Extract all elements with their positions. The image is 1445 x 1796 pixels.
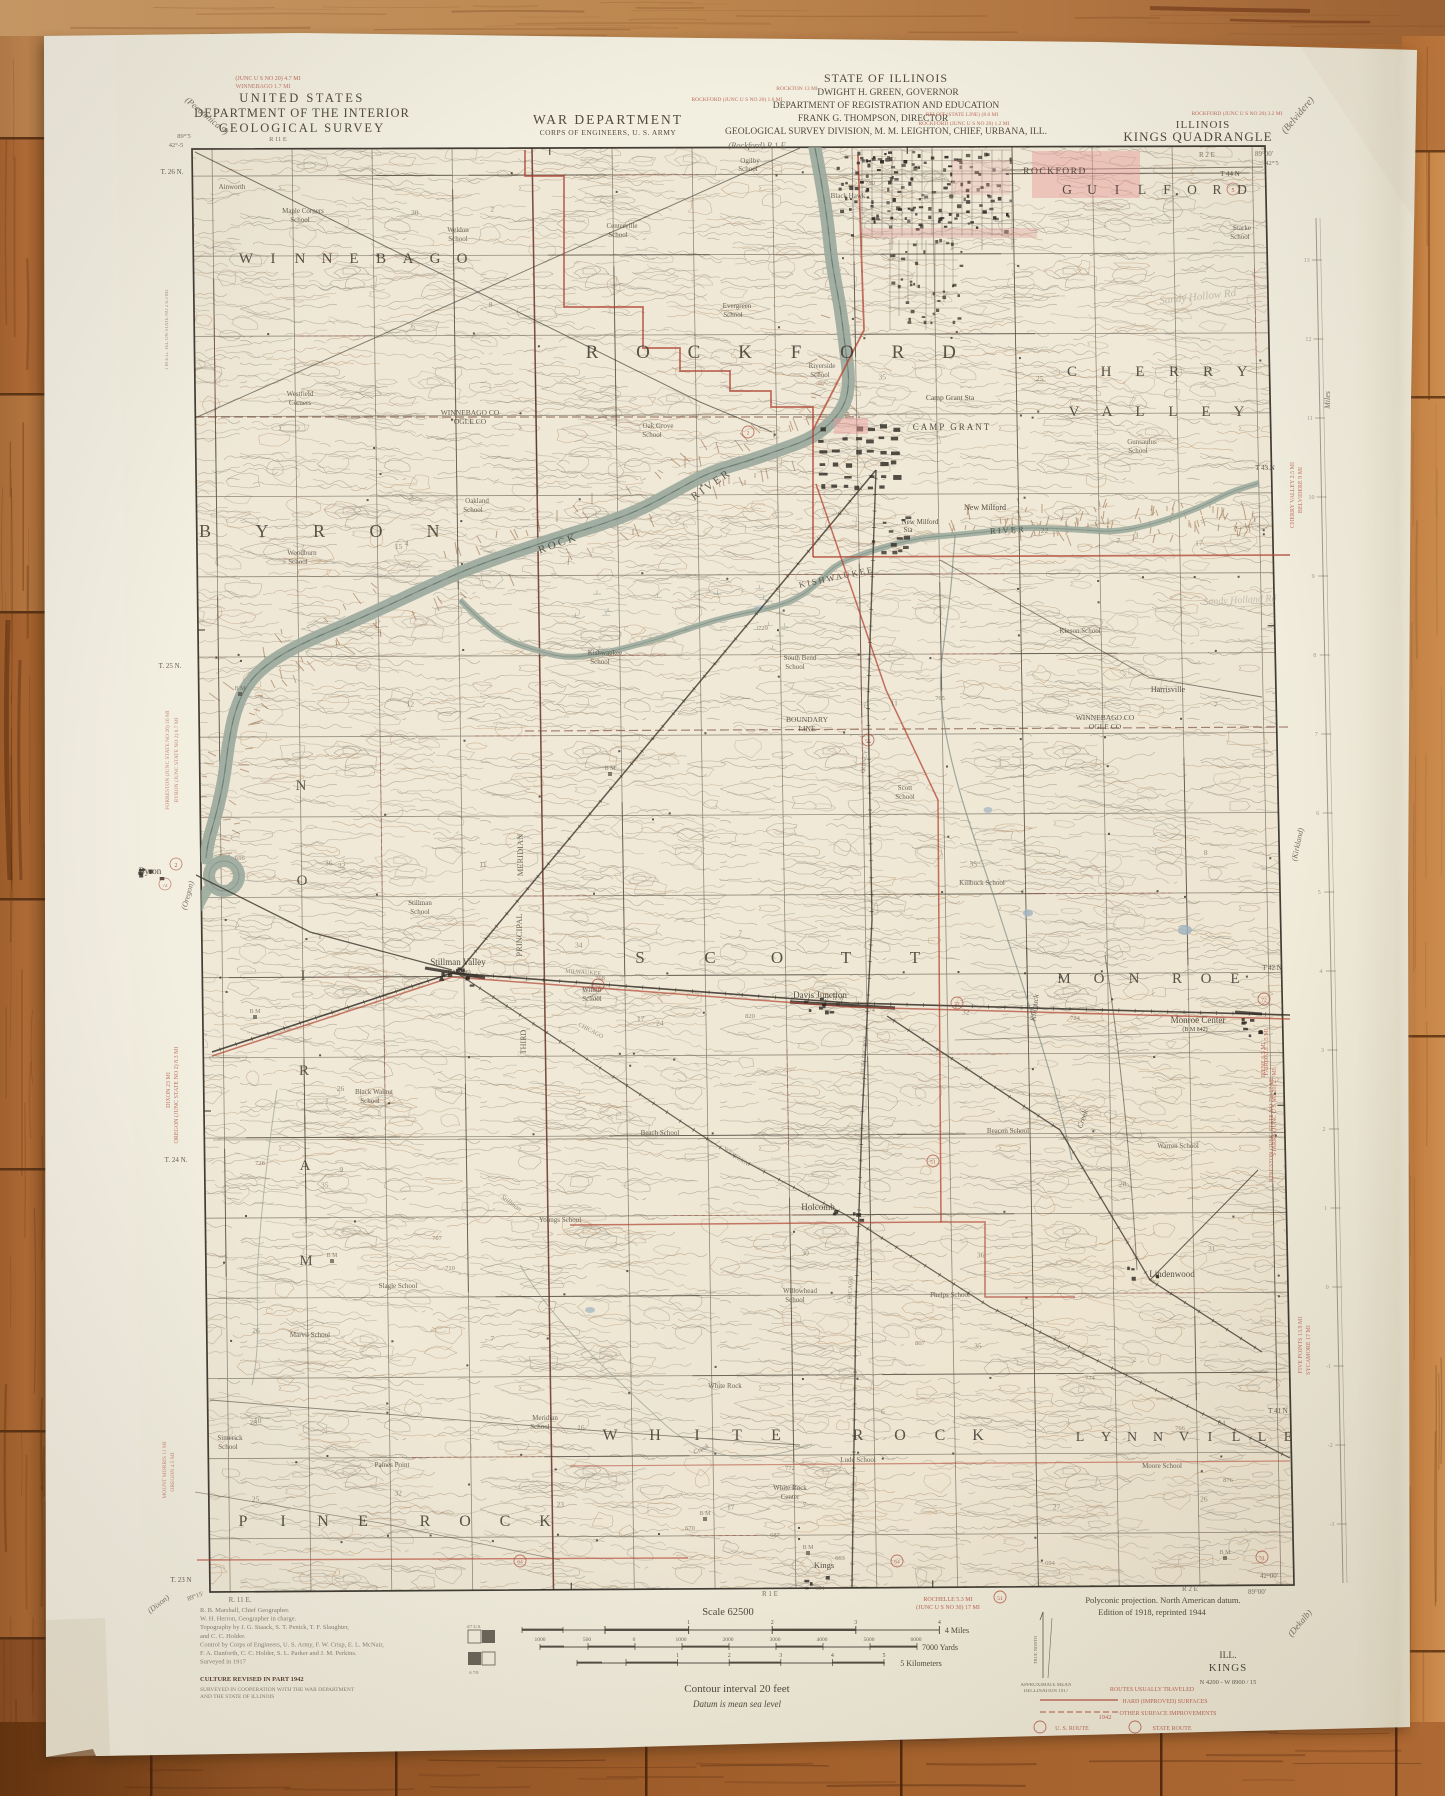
svg-text:Woodburn: Woodburn [287,549,317,557]
svg-text:9: 9 [340,1165,344,1174]
svg-text:F. A. Danforth, C. C. Holder,: F. A. Danforth, C. C. Holder, S. L. Park… [200,1650,357,1657]
svg-text:4 Miles: 4 Miles [945,1626,969,1635]
svg-text:17: 17 [1195,539,1203,548]
svg-text:807: 807 [915,1340,926,1347]
svg-text:707: 707 [432,1235,443,1242]
svg-text:Riverside: Riverside [809,362,836,370]
svg-text:35: 35 [974,1341,982,1350]
svg-text:B M: B M [605,766,617,772]
svg-text:SYCAMORE 17 MI: SYCAMORE 17 MI [1306,1325,1312,1375]
svg-text:7: 7 [490,1334,494,1343]
svg-text:School: School [288,558,308,566]
svg-text:School: School [360,1097,380,1105]
svg-text:ILL.: ILL. [1219,1651,1236,1661]
svg-text:-3: -3 [1329,1522,1334,1528]
svg-text:Beach School: Beach School [641,1129,680,1137]
svg-text:51: 51 [1259,1556,1265,1562]
svg-text:APPROXIMATE MEAN: APPROXIMATE MEAN [1021,1683,1072,1688]
svg-text:R: R [853,1427,864,1444]
svg-text:School: School [738,165,758,173]
svg-text:C: C [935,1427,946,1444]
svg-text:12: 12 [1305,337,1311,343]
svg-text:WAR DEPARTMENT: WAR DEPARTMENT [533,112,683,127]
svg-text:FAIRDALE 3.5 MI: FAIRDALE 3.5 MI [1264,1028,1270,1075]
svg-text:651: 651 [815,1585,825,1592]
svg-text:42°00': 42°00' [1260,1572,1278,1580]
svg-text:OGLE CO: OGLE CO [454,417,487,426]
svg-text:Kishwaukee: Kishwaukee [588,649,623,657]
svg-text:2: 2 [771,1620,774,1626]
svg-text:ROUTES USUALLY TRAVELED: ROUTES USUALLY TRAVELED [1110,1687,1195,1693]
svg-text:51: 51 [930,1160,936,1166]
svg-text:O: O [457,251,468,267]
svg-text:M: M [299,1253,312,1269]
svg-text:5000: 5000 [864,1637,875,1643]
svg-text:I: I [280,1513,285,1530]
svg-text:FORRESTON (JUNC STATE NO 26) 1: FORRESTON (JUNC STATE NO 26) 16 MI [164,710,171,810]
svg-text:School: School [530,1423,550,1431]
svg-text:35: 35 [969,860,977,869]
svg-text:N: N [295,251,306,267]
svg-text:4: 4 [938,1620,941,1626]
svg-text:26: 26 [252,1326,260,1335]
svg-text:Youngs School: Youngs School [539,1216,581,1224]
svg-text:R. 11 E.: R. 11 E. [229,1596,252,1604]
svg-text:CULTURE REVISED IN PART 1942: CULTURE REVISED IN PART 1942 [200,1676,304,1683]
svg-text:R: R [1212,182,1221,197]
svg-text:C: C [500,1513,511,1530]
svg-text:C: C [688,342,701,363]
svg-text:694: 694 [1045,1560,1056,1567]
svg-text:School: School [723,311,743,319]
svg-text:R: R [313,521,325,541]
svg-text:GEOLOGICAL SURVEY: GEOLOGICAL SURVEY [219,121,385,135]
svg-text:Control by Corps of Engineers,: Control by Corps of Engineers, U. S. Arm… [200,1641,384,1648]
svg-text:N: N [1153,1430,1163,1445]
svg-text:DECLINATION 1917: DECLINATION 1917 [1024,1689,1069,1694]
svg-text:72: 72 [163,884,169,889]
svg-text:51: 51 [997,1596,1003,1602]
svg-text:35: 35 [879,373,887,382]
svg-text:K: K [972,1427,984,1444]
svg-text:N: N [322,251,333,267]
svg-text:2: 2 [175,863,178,869]
svg-text:Lindenwood: Lindenwood [1149,1269,1195,1279]
svg-text:30: 30 [411,208,419,217]
svg-text:Contour interval 20 feet: Contour interval 20 feet [684,1683,789,1695]
svg-text:Corners: Corners [289,399,311,407]
svg-text:Simerick: Simerick [217,1434,243,1442]
svg-text:V: V [1069,404,1080,420]
svg-text:ROCHELLE 5.3 MI: ROCHELLE 5.3 MI [923,1597,972,1603]
svg-text:Byron: Byron [139,866,162,876]
svg-text:36: 36 [977,1251,985,1260]
svg-text:M: M [1057,971,1070,987]
svg-text:Gunsaulus: Gunsaulus [1127,438,1157,446]
svg-text:School: School [218,1443,238,1451]
svg-text:Willowhead: Willowhead [783,1287,817,1295]
svg-text:A: A [1102,404,1113,420]
svg-text:FIVE POINTS 13.9 MI: FIVE POINTS 13.9 MI [1298,1317,1304,1374]
svg-text:32: 32 [962,1008,970,1017]
svg-text:K: K [738,342,752,363]
svg-text:N: N [317,1513,329,1530]
svg-text:6: 6 [1316,811,1319,817]
svg-text:ROCKFORD: ROCKFORD [1023,167,1087,177]
svg-text:2: 2 [728,1653,731,1659]
svg-text:Oakland: Oakland [465,497,489,505]
svg-text:-1: -1 [1326,1364,1331,1370]
svg-text:New Milford: New Milford [964,503,1006,512]
svg-text:ROCKFORD (JUNC U S NO 20) 1.2: ROCKFORD (JUNC U S NO 20) 1.2 MI [918,120,1009,127]
svg-text:ROCKTON 13 MI: ROCKTON 13 MI [776,86,818,92]
svg-text:F: F [791,342,802,363]
svg-text:E: E [1201,404,1210,420]
svg-text:O: O [840,342,854,363]
svg-text:72: 72 [954,1002,960,1008]
svg-text:R 2 E: R 2 E [1199,151,1215,159]
svg-text:B M: B M [1220,1550,1232,1556]
svg-text:30: 30 [801,1249,809,1258]
svg-text:4/7 U.S.: 4/7 U.S. [467,1624,482,1629]
svg-text:V: V [1179,1430,1189,1445]
svg-text:Evergreen: Evergreen [723,302,752,310]
svg-text:64: 64 [894,1560,900,1566]
svg-text:R: R [1172,971,1182,987]
svg-text:728: 728 [255,1160,265,1167]
svg-text:Polyconic projection. North: Polyconic projection. North American dat… [1085,1595,1240,1605]
svg-text:51: 51 [865,739,871,745]
svg-text:I: I [1115,182,1120,197]
svg-text:Meridian: Meridian [532,1414,558,1422]
svg-text:26: 26 [337,1084,345,1093]
svg-text:South Bend: South Bend [784,654,817,662]
svg-text:Y: Y [1234,404,1245,420]
svg-text:L: L [1138,182,1146,197]
svg-text:Lude School: Lude School [840,1456,876,1464]
svg-text:H: H [1101,364,1112,380]
svg-text:12: 12 [406,700,414,709]
svg-text:1942: 1942 [1099,1714,1112,1721]
svg-text:Holcomb: Holcomb [801,1202,835,1212]
svg-text:784: 784 [1070,1015,1081,1022]
svg-text:B M: B M [327,1253,339,1259]
svg-text:3: 3 [779,1653,782,1659]
svg-text:35: 35 [321,1181,329,1190]
svg-text:774: 774 [865,1007,876,1014]
svg-text:C: C [1067,364,1077,380]
svg-text:687: 687 [770,1532,781,1539]
svg-text:Y: Y [1101,1430,1111,1445]
svg-text:Centerville: Centerville [606,222,637,230]
svg-text:School: School [642,431,662,439]
svg-text:G: G [430,251,441,267]
svg-text:T 43 N: T 43 N [1255,464,1275,472]
svg-text:STATE OF ILLINOIS: STATE OF ILLINOIS [824,71,948,85]
svg-text:T. 24 N.: T. 24 N. [165,1156,188,1164]
svg-text:School: School [1230,233,1250,241]
svg-text:Starke: Starke [1233,224,1251,232]
svg-text:R 11 E: R 11 E [269,136,287,143]
svg-text:E: E [771,1427,781,1444]
svg-text:B M: B M [833,996,845,1002]
svg-text:School: School [410,908,430,916]
svg-text:U: U [1087,182,1097,197]
svg-text:OREGON (JUNC STATE NO 2) 8.3 M: OREGON (JUNC STATE NO 2) 8.3 MI [173,1046,180,1143]
svg-text:Sta: Sta [904,526,914,534]
svg-text:MOUNT MORRIS 11 MI: MOUNT MORRIS 11 MI [162,1441,168,1498]
svg-text:CHERRY VALLEY 2.5 MI: CHERRY VALLEY 2.5 MI [1290,462,1296,528]
svg-text:O: O [1187,182,1197,197]
svg-text:B: B [199,521,211,541]
svg-text:730: 730 [590,995,600,1002]
svg-text:I: I [1208,1430,1213,1445]
svg-text:Stillman Valley: Stillman Valley [430,957,486,967]
svg-text:L: L [1076,1430,1085,1445]
svg-text:5: 5 [1318,890,1321,896]
svg-text:A: A [300,1158,311,1174]
svg-text:Y: Y [256,521,269,541]
svg-text:DEPARTMENT OF THE INTERIOR: DEPARTMENT OF THE INTERIOR [194,106,410,120]
svg-text:White Rock: White Rock [708,1382,742,1390]
svg-text:1: 1 [687,1620,690,1626]
svg-text:28: 28 [1119,1180,1127,1189]
svg-text:8: 8 [489,300,493,309]
svg-text:1000: 1000 [535,1637,546,1643]
svg-text:T 42 N: T 42 N [1262,964,1282,972]
svg-text:3: 3 [854,1620,857,1626]
svg-text:25: 25 [1036,374,1044,383]
svg-text:Weldon: Weldon [447,226,469,234]
svg-text:I: I [301,968,306,984]
svg-text:School: School [785,1296,805,1304]
svg-text:O: O [636,342,650,363]
svg-text:T 44 N: T 44 N [1220,170,1240,178]
svg-text:72: 72 [595,984,601,990]
svg-text:KINGS QUADRANGLE: KINGS QUADRANGLE [1123,129,1272,144]
svg-text:DIXON 23 MI: DIXON 23 MI [166,1072,172,1108]
svg-text:T: T [910,948,921,967]
svg-text:663: 663 [835,1555,845,1562]
svg-text:4: 4 [831,1653,834,1659]
svg-text:780: 780 [865,180,875,187]
svg-text:D: D [1237,182,1247,197]
svg-text:New Milford: New Milford [902,518,939,526]
svg-text:11: 11 [1307,416,1313,422]
svg-text:School: School [810,371,830,379]
svg-text:K: K [539,1513,551,1530]
svg-text:Black Hawk: Black Hawk [831,192,866,200]
svg-text:T. 26 N.: T. 26 N. [161,168,184,176]
svg-text:ROCKFORD (JUNC U S NO 20) 1.6: ROCKFORD (JUNC U S NO 20) 1.6 MI [691,96,782,103]
svg-text:White Rock: White Rock [773,1484,807,1492]
svg-text:D: D [942,342,956,363]
svg-text:L: L [1232,1430,1241,1445]
svg-text:R: R [1169,364,1179,380]
svg-text:BOUNDARY: BOUNDARY [786,715,829,724]
svg-text:Stillman: Stillman [408,899,432,907]
svg-text:Beacon School: Beacon School [987,1127,1029,1135]
svg-text:670: 670 [685,1525,695,1532]
svg-text:23: 23 [556,1500,564,1509]
svg-text:OTHER SURFACE IMPROVEMENTS: OTHER SURFACE IMPROVEMENTS [1120,1711,1217,1717]
svg-text:SURVEYED IN COOPERATION WITH T: SURVEYED IN COOPERATION WITH THE WAR DEP… [200,1687,355,1693]
svg-text:O: O [1094,971,1105,987]
svg-text:MERIDIAN: MERIDIAN [515,834,525,877]
svg-text:UNITED STATES: UNITED STATES [239,91,365,105]
svg-text:Camp Grant Sta: Camp Grant Sta [926,393,975,402]
svg-text:Maple Corners: Maple Corners [282,207,324,215]
svg-text:STARKS (JUNC U S NO 20) 27 MI: STARKS (JUNC U S NO 20) 27 MI [1271,1068,1278,1156]
svg-text:CAMP GRANT: CAMP GRANT [913,422,991,432]
svg-text:8: 8 [1204,848,1208,857]
svg-text:E: E [1284,1430,1293,1445]
svg-text:5 Kilometers: 5 Kilometers [900,1659,942,1668]
svg-text:F: F [1163,182,1171,197]
svg-text:Oak Grove: Oak Grove [643,422,674,430]
svg-text:HARD (IMPROVED) SURFACES: HARD (IMPROVED) SURFACES [1122,1698,1207,1705]
svg-text:Phelps School: Phelps School [930,1291,970,1299]
svg-text:R: R [299,1063,309,1079]
svg-text:(Rockford) R 1 E: (Rockford) R 1 E [728,140,786,150]
svg-text:Scale 62500: Scale 62500 [702,1607,754,1618]
svg-text:School: School [895,793,915,801]
svg-text:Datum is mean sea level: Datum is mean sea level [692,1699,781,1709]
svg-text:774: 774 [1085,1375,1096,1382]
svg-text:Kings: Kings [814,1560,834,1570]
svg-text:1 M E.G. TEL ON STATE NO 2 6.: 1 M E.G. TEL ON STATE NO 2 6.3 MI [165,290,170,370]
svg-text:A: A [403,251,414,267]
svg-text:School: School [463,506,483,514]
svg-text:Ogilby: Ogilby [740,157,760,165]
svg-text:P: P [239,1513,248,1530]
svg-text:N: N [1129,971,1140,987]
svg-text:5: 5 [883,1653,886,1659]
svg-text:DEPARTMENT OF REGISTRATION AND: DEPARTMENT OF REGISTRATION AND EDUCATION [773,101,1000,111]
svg-text:6 7/8: 6 7/8 [469,1670,479,1675]
svg-text:N: N [296,778,307,794]
svg-text:11: 11 [479,860,486,869]
svg-text:7: 7 [738,929,742,938]
svg-text:7: 7 [1315,732,1318,738]
svg-text:E: E [358,1513,368,1530]
svg-text:Topography by J. G. Staack, S.: Topography by J. G. Staack, S. T. Penick… [200,1624,349,1631]
svg-text:1000: 1000 [676,1637,687,1643]
svg-text:42°'5: 42°'5 [1265,160,1279,167]
svg-text:7000 Yards: 7000 Yards [922,1643,958,1652]
svg-text:School: School [608,231,628,239]
svg-text:22: 22 [1041,526,1049,535]
svg-text:3: 3 [1321,1048,1324,1054]
svg-text:42°-5: 42°-5 [169,142,184,149]
svg-text:766: 766 [1175,1425,1186,1432]
svg-text:0: 0 [1326,1285,1329,1291]
svg-text:89°00': 89°00' [1255,150,1273,158]
svg-text:and C. C. Holder.: and C. C. Holder. [200,1633,246,1640]
svg-text:T 41 N: T 41 N [1268,1407,1288,1415]
svg-text:(JUNC U S NO 20) 4.7 MI: (JUNC U S NO 20) 4.7 MI [235,75,300,82]
svg-text:7: 7 [803,1500,807,1509]
svg-text:-2: -2 [1328,1443,1333,1449]
svg-text:E: E [1230,971,1239,987]
svg-text:B M: B M [235,686,247,692]
svg-text:500: 500 [583,1637,592,1643]
svg-text:25: 25 [252,1495,260,1504]
svg-text:4000: 4000 [817,1637,828,1643]
svg-text:696: 696 [235,855,246,862]
svg-text:B M: B M [803,1545,815,1551]
svg-text:27: 27 [1053,1502,1061,1511]
svg-text:10: 10 [1309,495,1315,501]
svg-text:7: 7 [1116,536,1120,545]
svg-text:BELVIDERE 9 MI: BELVIDERE 9 MI [1298,467,1304,513]
svg-text:KINGS: KINGS [1209,1662,1248,1674]
svg-text:STATE ROUTE: STATE ROUTE [1152,1726,1191,1732]
svg-text:School: School [590,658,610,666]
svg-text:R: R [420,1513,431,1530]
svg-text:School: School [1128,447,1148,455]
svg-text:W. H. Herron, Geographer in ch: W. H. Herron, Geographer in charge. [200,1616,297,1623]
svg-text:Scott: Scott [898,784,912,792]
svg-text:34: 34 [575,940,583,949]
svg-text:Black Walnut: Black Walnut [355,1088,393,1096]
svg-text:Kinson School: Kinson School [1059,627,1100,635]
svg-text:W: W [602,1427,618,1444]
svg-text:0: 0 [633,1637,636,1643]
svg-text:AND THE STATE OF ILLINOIS: AND THE STATE OF ILLINOIS [200,1694,274,1700]
svg-text:S: S [635,948,644,967]
svg-text:WINNEBAGO CO: WINNEBAGO CO [441,408,500,417]
svg-text:24: 24 [656,1019,664,1028]
svg-text:7: 7 [1214,700,1218,709]
svg-text:Surveyed in 1917: Surveyed in 1917 [200,1659,247,1666]
svg-text:E: E [349,251,358,267]
svg-text:H: H [649,1427,661,1444]
svg-text:1: 1 [318,932,322,941]
svg-text:Paines Point: Paines Point [375,1461,410,1469]
svg-text:T. 23 N: T. 23 N [170,1576,191,1584]
svg-text:C: C [704,948,715,967]
svg-text:Killbuck School: Killbuck School [959,879,1005,887]
svg-text:School: School [448,235,468,243]
svg-text:B M: B M [250,1009,262,1015]
svg-text:O: O [459,1513,471,1530]
svg-text:T: T [732,1427,742,1444]
svg-text:(JUNC U S NO 30) 17 MI: (JUNC U S NO 30) 17 MI [916,1604,980,1611]
svg-text:765: 765 [935,695,945,702]
svg-text:R: R [586,342,599,363]
svg-text:L: L [1135,404,1144,420]
svg-text:Westfield: Westfield [287,390,314,398]
svg-text:THIRD: THIRD [519,1030,528,1055]
svg-text:WINNEBAGO CO: WINNEBAGO CO [1076,713,1135,722]
svg-text:B: B [376,251,386,267]
svg-text:DWIGHT H. GREEN, GOVERNOR: DWIGHT H. GREEN, GOVERNOR [817,88,959,98]
svg-text:T. 25 N.: T. 25 N. [159,662,182,670]
svg-text:R 2 E: R 2 E [1182,1585,1198,1593]
svg-text:17: 17 [727,1502,735,1511]
svg-text:R I V E R: R I V E R [990,524,1025,536]
svg-text:N 4200 - W 8900 / 15: N 4200 - W 8900 / 15 [1200,1679,1257,1686]
svg-text:O: O [370,521,383,541]
svg-text:25: 25 [1205,365,1213,374]
svg-text:Warren School: Warren School [1157,1142,1199,1150]
svg-text:772: 772 [785,1465,795,1472]
svg-text:Miles: Miles [1323,391,1332,410]
svg-text:PRINCIPAL: PRINCIPAL [514,913,524,956]
svg-text:2: 2 [747,431,750,437]
svg-text:(B M 842): (B M 842) [1182,1026,1207,1033]
